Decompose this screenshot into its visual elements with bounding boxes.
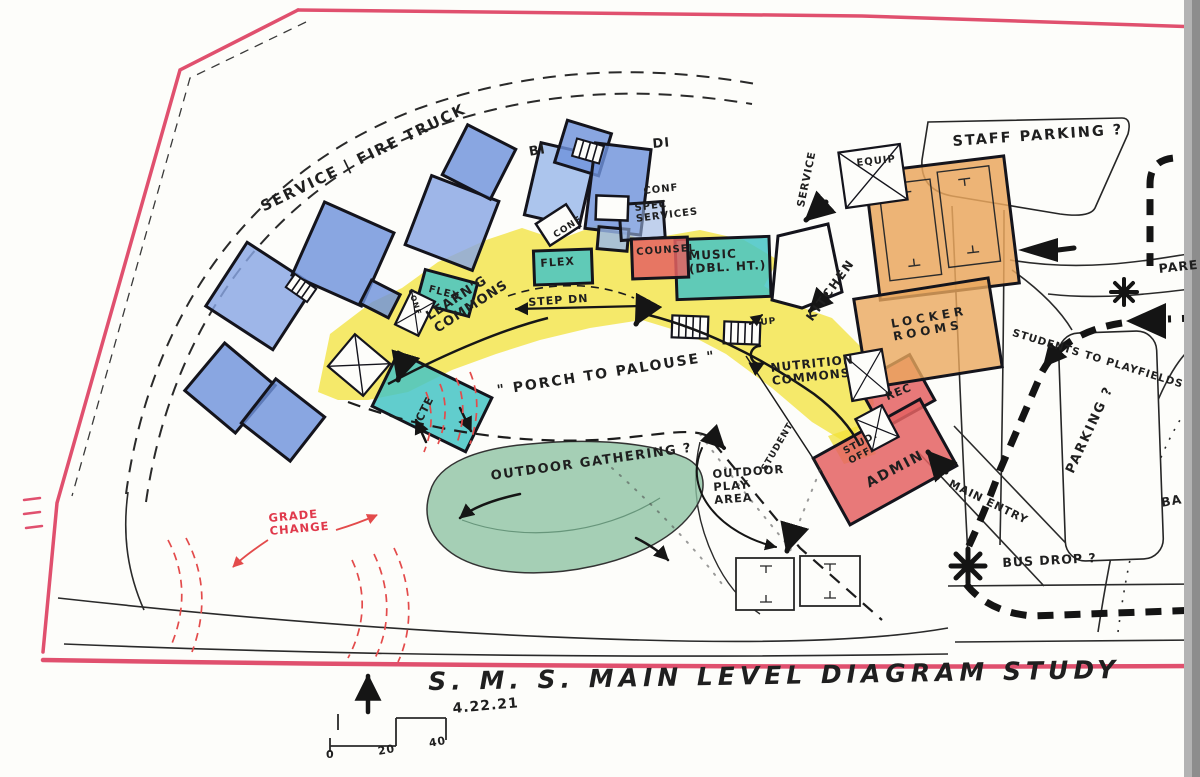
- label-grade-change: GRADE CHANGE: [268, 507, 330, 538]
- label-outdoor-play: OUTDOOR PLAY AREA: [712, 463, 786, 507]
- play-courts: [736, 556, 860, 610]
- label-flex-east: FLEX: [540, 256, 575, 271]
- label-bi: BI: [528, 143, 547, 160]
- label-up: UP: [760, 316, 777, 328]
- gym-left-arrowhead: [1018, 238, 1058, 262]
- label-di: DI: [652, 136, 671, 152]
- scale-tick-0: 0: [326, 749, 335, 761]
- label-music: MUSIC (DBL. HT.): [688, 246, 767, 277]
- scan-edge: [1184, 0, 1200, 777]
- site-plan-sketch: SERVICE | FIRE TRUCK STAFF PARKING ? BI …: [0, 0, 1200, 777]
